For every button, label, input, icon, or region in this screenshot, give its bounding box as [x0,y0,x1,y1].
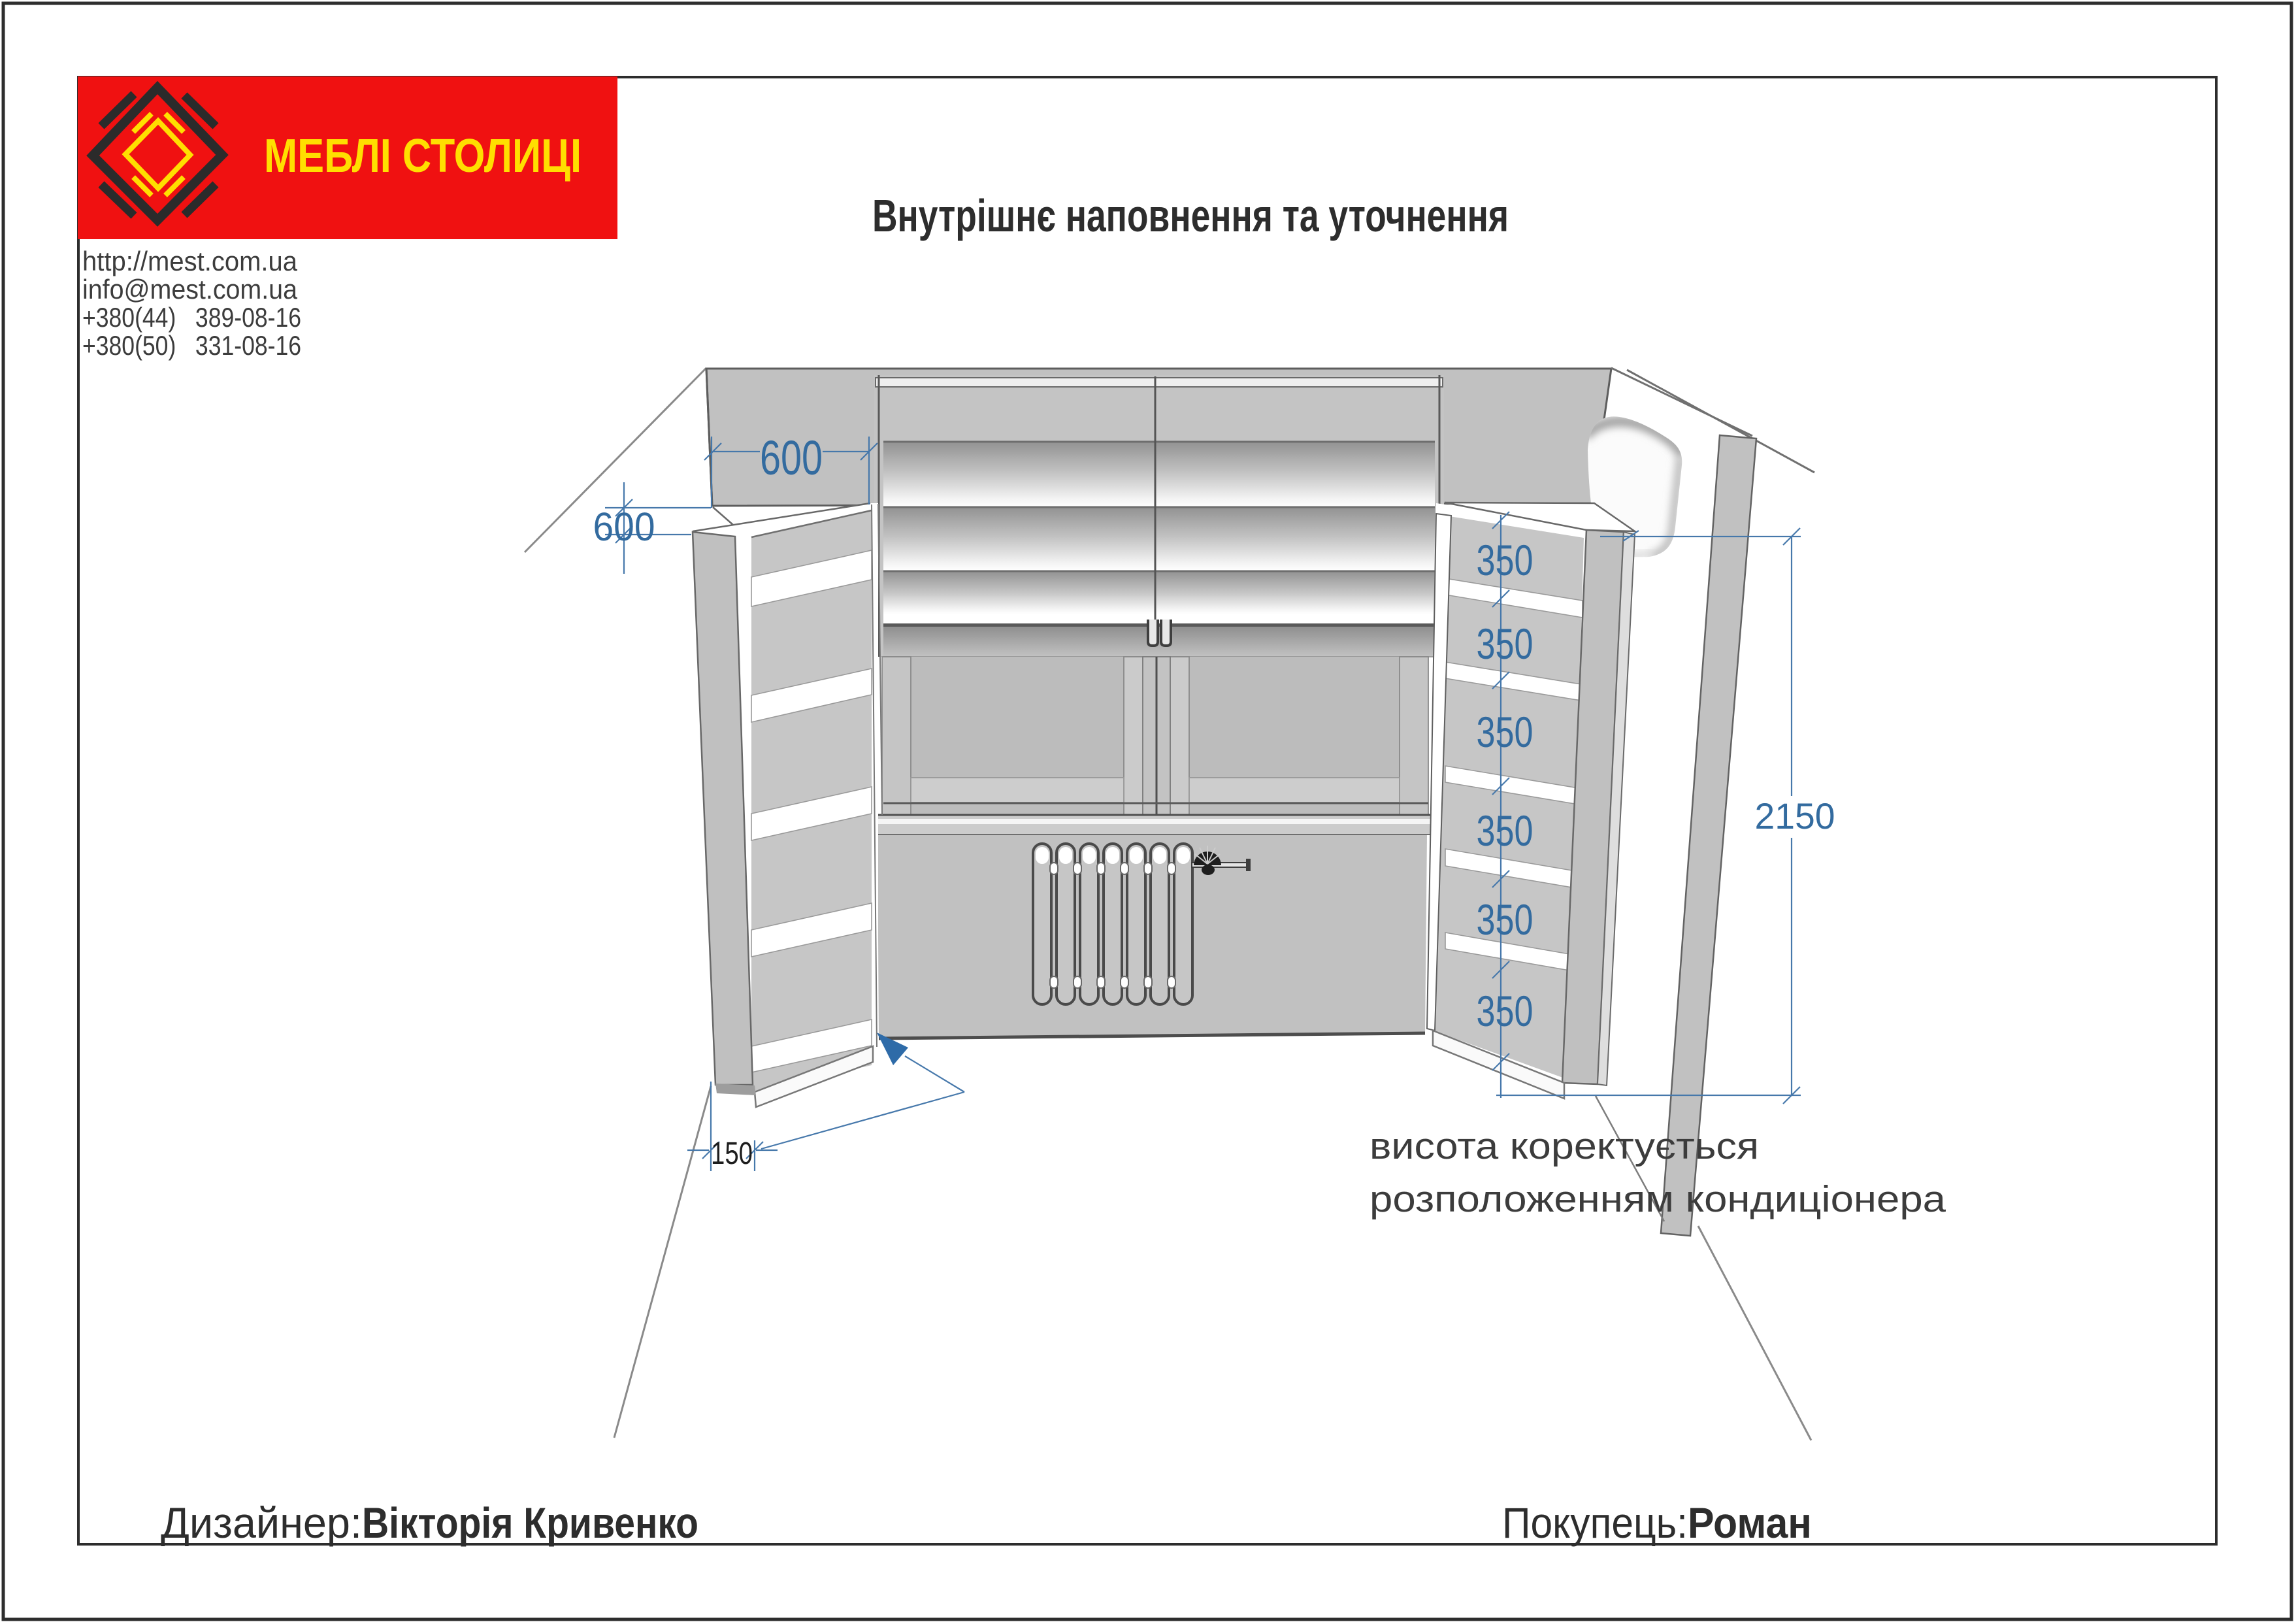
svg-text:Роман: Роман [1688,1498,1812,1547]
svg-text:Покупець:: Покупець: [1502,1498,1688,1547]
svg-text:Дизайнер:: Дизайнер: [161,1498,362,1547]
svg-text:МЕБЛІ СТОЛИЦІ: МЕБЛІ СТОЛИЦІ [264,130,582,182]
svg-text:600: 600 [760,431,823,485]
svg-text:розположенням кондиціонера: розположенням кондиціонера [1369,1178,1946,1220]
svg-text:600: 600 [593,505,655,549]
svg-text:350: 350 [1477,806,1533,855]
svg-text:2150: 2150 [1755,795,1835,836]
svg-text:+380(44) 389-08-16: +380(44) 389-08-16 [82,302,301,333]
svg-text:Вікторія Кривенко: Вікторія Кривенко [362,1498,698,1547]
svg-text:info@mest.com.ua: info@mest.com.ua [82,274,298,305]
svg-text:http://mest.com.ua: http://mest.com.ua [82,246,298,276]
svg-text:350: 350 [1477,708,1533,756]
svg-text:350: 350 [1477,620,1533,668]
svg-text:+380(50) 331-08-16: +380(50) 331-08-16 [82,330,301,361]
svg-text:350: 350 [1477,895,1533,944]
svg-text:350: 350 [1477,536,1533,584]
svg-text:350: 350 [1477,987,1533,1035]
svg-text:Внутрішнє наповнення та уточне: Внутрішнє наповнення та уточнення [872,190,1509,241]
svg-text:150: 150 [711,1136,753,1171]
svg-text:висота коректується: висота коректується [1369,1125,1759,1167]
